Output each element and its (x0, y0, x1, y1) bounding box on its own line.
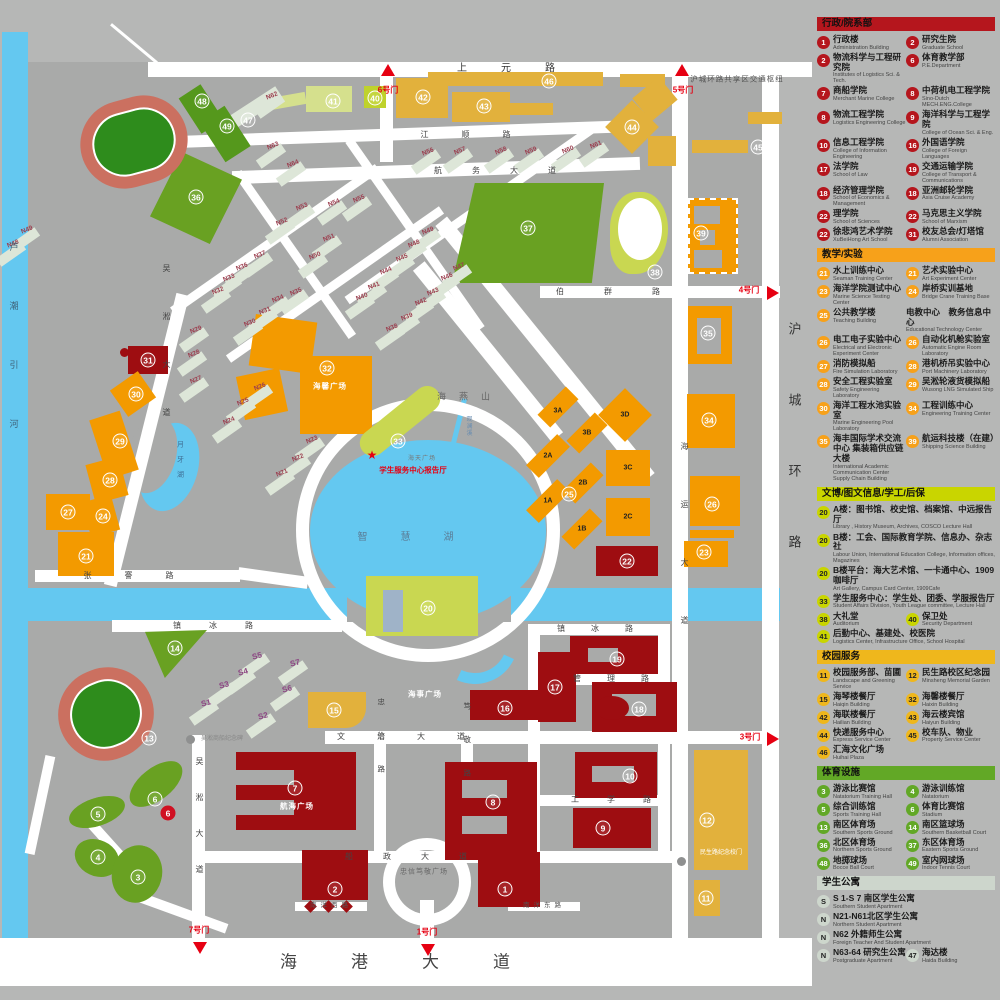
map-label: 2A (544, 453, 553, 460)
legend-row: 23海洋学院测试中心Marine Science Testing Center2… (817, 284, 995, 306)
map-number-7: 7 (288, 781, 303, 796)
map-number-2: 2 (328, 882, 343, 897)
legend-number-badge: 2 (817, 54, 830, 67)
legend-entry-text: 消防模拟船Fire Simulation Laboratory (833, 359, 898, 375)
legend-entry-text: 海云楼宾馆Haiyun Building (922, 710, 965, 726)
legend-number-badge: 14 (906, 821, 919, 834)
detail-shape (618, 198, 662, 260)
legend-row: 27消防模拟船Fire Simulation Laboratory28港机桥吊实… (817, 359, 995, 375)
map-label: 海天广场 (408, 456, 436, 462)
legend-entry-zh: 海馨楼餐厅 (922, 692, 965, 702)
legend-entry: 44快递服务中心Express Service Center (817, 728, 906, 744)
map-number-28: 28 (103, 473, 118, 488)
legend-number-badge: 4 (906, 785, 919, 798)
legend-entry-en: Marine Science Testing Center (833, 294, 906, 306)
detail-shape (126, 352, 140, 355)
legend-entry: 13南区体育场Southern Sports Ground (817, 820, 906, 836)
legend-entry-en: Automatic Engine Room Laboratory (922, 345, 995, 357)
legend-entry: 37东区体育场Eastern Sports Ground (906, 838, 995, 854)
legend-entry-en: Southern Sports Ground (833, 830, 893, 836)
legend-entry: 47海达楼Haida Building (906, 948, 995, 964)
map-label: 镇冰路 (173, 622, 281, 630)
legend-entry-text: 安全工程实验室Safety Engineering Laboratory (833, 377, 906, 399)
legend-entry: 35海丰国际学术交流中心 集装箱供应链大楼International Acade… (817, 434, 906, 481)
map-number-17: 17 (548, 680, 563, 695)
legend-row: 20B楼：工会、国际教育学院、信息办、杂志社Labour Union, Inte… (817, 533, 995, 565)
legend-number-badge: 46 (817, 746, 830, 759)
legend-entry-zh: 经济管理学院 (833, 186, 906, 196)
legend-entry-text: 外国语学院College of Foreign Languages (922, 138, 995, 160)
legend-entry-zh: S 1-S 7 南区学生公寓 (833, 894, 915, 904)
legend-number-badge: 40 (906, 613, 919, 626)
legend-entry: 49室内网球场Indoor Tennis Court (906, 856, 995, 872)
legend-entry-en: Electrical and Electronic Experiment Cen… (833, 345, 906, 357)
legend-number-badge: 22 (817, 210, 830, 223)
legend-number-badge: 29 (906, 378, 919, 391)
legend-entry-text: 自动化机舱实验室Automatic Engine Room Laboratory (922, 335, 995, 357)
legend-entry: 20A楼：图书馆、校史馆、档案馆、中远报告厅Library , History … (817, 505, 995, 531)
legend-row: NN62 外籍师生公寓Foreign Teacher And Student A… (817, 930, 995, 946)
legend-number-badge: 33 (817, 595, 830, 608)
legend-entry: 28港机桥吊实验中心Port Machinery Laboratory (906, 359, 995, 375)
legend-row: 10信息工程学院College of Information Engineeri… (817, 138, 995, 160)
legend-number-badge: 17 (817, 163, 830, 176)
legend-number-badge: 28 (817, 378, 830, 391)
legend-entry: 电教中心 教务信息中心Educational Technology Center (906, 308, 995, 334)
building (692, 140, 748, 153)
legend-row: 13南区体育场Southern Sports Ground14南区篮球场Sout… (817, 820, 995, 836)
legend-entry-en: Natatorium (922, 794, 965, 800)
legend-entry-en: Safety Engineering Laboratory (833, 387, 906, 399)
legend-entry-en: Art Gallery, Campus Card Center, 1909Caf… (833, 586, 995, 592)
building (300, 356, 372, 434)
legend-entry-zh: N62 外籍师生公寓 (833, 930, 931, 940)
legend-entry: NN62 外籍师生公寓Foreign Teacher And Student A… (817, 930, 995, 946)
legend-entry-zh: 水上训练中心 (833, 266, 893, 276)
gate-label: 4号门 (739, 285, 759, 296)
legend-entry: 21艺术实验中心Art Experiment Center (906, 266, 995, 282)
gate-label: 5号门 (673, 85, 693, 96)
legend-entry: 36北区体育场Northern Sports Ground (817, 838, 906, 854)
map-label: 海港大道 (280, 954, 564, 971)
legend-entry-en: Port Machinery Laboratory (922, 369, 990, 375)
legend-row: 3游泳比赛馆Natatorium Training Hall4游泳训练馆Nata… (817, 784, 995, 800)
legend-row: 11校园服务部、苗圃Landscape and Greening Service… (817, 668, 995, 690)
legend-entry-zh: 公共教学楼 (833, 308, 876, 318)
legend-entry: 26自动化机舱实验室Automatic Engine Room Laborato… (906, 335, 995, 357)
map-number-29: 29 (113, 434, 128, 449)
legend-entry-en: Merchant Marine College (833, 96, 894, 102)
legend-entry-text: 室内网球场Indoor Tennis Court (922, 856, 970, 872)
legend-entry-en: Sino-Dutch MECH.ENG.College (922, 96, 995, 108)
legend-entry-text: 亚洲邮轮学院Asia Cruise Academy (922, 186, 974, 202)
legend-number-badge: 15 (817, 693, 830, 706)
legend-row: 44快递服务中心Express Service Center45校车队、物业Pr… (817, 728, 995, 744)
map-number-49: 49 (220, 119, 235, 134)
legend-entry: 29吴淞轮液货模拟船Wusong LNG Simulated Ship (906, 377, 995, 399)
legend-entry-en: Southern Basketball Court (922, 830, 986, 836)
legend-row: NN63-64 研究生公寓Postgraduate Apartment47海达楼… (817, 948, 995, 964)
map-number-42: 42 (416, 90, 431, 105)
map-number-15: 15 (327, 703, 342, 718)
legend-entry-text: 信息工程学院College of Information Engineering (833, 138, 906, 160)
legend-number-badge: 23 (817, 285, 830, 298)
legend-number-badge: 10 (817, 139, 830, 152)
gate-label: 3号门 (740, 732, 760, 743)
legend-entry-zh: 海云楼宾馆 (922, 710, 965, 720)
legend-entry-zh: 体育比赛馆 (922, 802, 965, 812)
legend-entry-en: Haiyun Building (922, 720, 965, 726)
legend-entry-en: Northern Student Apartment (833, 922, 918, 928)
legend-entry-en: School of Marxism (922, 219, 982, 225)
legend-number-badge: 43 (906, 711, 919, 724)
legend-entry: 20B楼：工会、国际教育学院、信息办、杂志社Labour Union, Inte… (817, 533, 995, 565)
legend-number-badge: 47 (906, 949, 919, 962)
legend-entry-text: B楼：工会、国际教育学院、信息办、杂志社Labour Union, Intern… (833, 533, 995, 565)
legend-entry-zh: 大礼堂 (833, 612, 859, 622)
legend-entry-text: 海琴楼餐厅Haiqin Building (833, 692, 876, 708)
legend-entry: 31校友总会/灯塔馆Alumni Association (906, 227, 995, 243)
legend-number-badge: 27 (817, 360, 830, 373)
map-number-32: 32 (320, 361, 335, 376)
gate-label: 1号门 (417, 927, 437, 938)
road (110, 23, 158, 64)
legend-entry-en: School of Sciences (833, 219, 880, 225)
legend-entry-en: College of Transport & Communications (922, 172, 995, 184)
road (762, 70, 779, 945)
legend-number-badge: 26 (817, 336, 830, 349)
legend-entry-text: 交通运输学院College of Transport & Communicati… (922, 162, 995, 184)
legend-entry-en: School of Law (833, 172, 868, 178)
map-label: 管理路 (573, 675, 675, 683)
map-label: 忠信笃敬广场 (400, 869, 448, 876)
map-label: 沪城环路 (788, 322, 801, 606)
legend-entry-en: Educational Technology Center (906, 327, 995, 333)
legend-entry-text: 中荷机电工程学院Sino-Dutch MECH.ENG.College (922, 86, 995, 108)
legend-number-badge: 28 (906, 360, 919, 373)
legend-entry-text: 海洋工程水池实验室Marine Engineering Pool Laborat… (833, 401, 906, 433)
legend-entry-en: Haiqin Building (833, 702, 876, 708)
legend-entry-en: Bocce Ball Court (833, 865, 874, 871)
legend-entry: 17法学院School of Law (817, 162, 906, 184)
map-label: 沪城环路共享区交通枢纽 (690, 75, 784, 83)
map-number-48: 48 (195, 94, 210, 109)
legend-entry-en: Teaching Building (833, 318, 876, 324)
legend-entry: 2研究生院Graduate School (906, 35, 995, 51)
legend-entry-en: Asia Cruise Academy (922, 195, 974, 201)
legend-entry-zh: 亚洲邮轮学院 (922, 186, 974, 196)
legend-number-badge: 37 (906, 839, 919, 852)
legend-entry: 22理学院School of Sciences (817, 209, 906, 225)
legend-entry-zh: 校友总会/灯塔馆 (922, 227, 984, 237)
map-label: 海运大道 (680, 442, 688, 674)
legend-entry: 10信息工程学院College of Information Engineeri… (817, 138, 906, 160)
legend-entry-zh: 后勤中心、基建处、校医院 (833, 629, 965, 639)
legend-entry-en: Logistics Engineering College (833, 120, 905, 126)
legend-entry-en: Express Service Center (833, 737, 891, 743)
legend-entry: 39航运科技楼（在建）Shipping Science Building (906, 434, 995, 481)
legend-entry-text: 岸桥实训基地Bridge Crane Training Base (922, 284, 990, 300)
legend-entry-text: 游泳训练馆Natatorium (922, 784, 965, 800)
campus-map-page: N21N22N23N24N25N26N27N28N29N30N31N32N33N… (0, 0, 1000, 1000)
legend-entry-en: Eastern Sports Ground (922, 847, 978, 853)
legend-entry: 6体育比赛馆Stadium (906, 802, 995, 818)
map-number-44: 44 (625, 120, 640, 135)
legend-entry-en: Student Affairs Division, Youth League c… (833, 603, 995, 609)
map-label: 工学路 (571, 796, 679, 804)
legend-entry-en: Landscape and Greening Service (833, 678, 906, 690)
legend-entry-text: 水上训练中心Seaman Training Center (833, 266, 893, 282)
detail-shape (236, 770, 294, 785)
map-number-21: 21 (79, 549, 94, 564)
legend-entry-zh: 消防模拟船 (833, 359, 898, 369)
legend-entry-zh: 徐悲鸿艺术学院 (833, 227, 893, 237)
detail-shape (186, 735, 195, 744)
map-label: 3C (624, 465, 633, 472)
legend-entry-text: 电工电子实验中心Electrical and Electronic Experi… (833, 335, 906, 357)
legend-entry-zh: 海丰国际学术交流中心 集装箱供应链大楼 (833, 434, 906, 463)
legend-entry: 6体育教学部P.E.Department (906, 53, 995, 85)
legend-entry-zh: 南区体育场 (833, 820, 893, 830)
legend-number-badge: 20 (817, 506, 830, 519)
legend-entry-zh: 北区体育场 (833, 838, 892, 848)
legend-section-header: 教学/实验 (817, 248, 995, 262)
map-label: 海燕山 (437, 393, 503, 402)
map-label: 3A (554, 408, 563, 415)
legend-number-badge: 22 (817, 228, 830, 241)
legend-entry-zh: 工程训练中心 (922, 401, 991, 411)
legend-entry-text: 游泳比赛馆Natatorium Training Hall (833, 784, 892, 800)
legend-entry-text: S 1-S 7 南区学生公寓Southern Student Apartment (833, 894, 915, 910)
legend-section-header: 文博/图文信息/学工/后保 (817, 487, 995, 501)
legend-number-badge: 19 (906, 163, 919, 176)
map-number-6: 6 (148, 792, 163, 807)
legend-row: 7商船学院Merchant Marine College8中荷机电工程学院Sin… (817, 86, 995, 108)
legend-number-badge: 18 (906, 187, 919, 200)
legend-entry-en: Auditorium (833, 621, 859, 627)
legend-number-badge: 11 (817, 669, 830, 682)
legend-number-badge: 5 (817, 803, 830, 816)
legend-section-header: 校园服务 (817, 650, 995, 664)
legend-entry-zh: 研究生院 (922, 35, 963, 45)
legend-entry-zh: 海联楼餐厅 (833, 710, 876, 720)
map-number-23: 23 (697, 545, 712, 560)
legend-number-badge: 7 (817, 87, 830, 100)
legend-row: 1行政楼Administration Building2研究生院Graduate… (817, 35, 995, 51)
legend-number-badge: 20 (817, 534, 830, 547)
legend-entry-en: Graduate School (922, 45, 963, 51)
legend-number-badge: 16 (906, 139, 919, 152)
legend-entry-zh: 汇海文化广场 (833, 745, 884, 755)
legend-number-badge: 8 (817, 111, 830, 124)
map-label: 南洋东路 (523, 903, 565, 910)
legend-entry-zh: 中荷机电工程学院 (922, 86, 995, 96)
detail-shape (383, 590, 403, 632)
legend-number-badge: 39 (906, 435, 919, 448)
legend-number-badge: 44 (817, 729, 830, 742)
legend-entry-en: Postgraduate Apartment (833, 958, 906, 964)
legend-row: 36北区体育场Northern Sports Ground37东区体育场East… (817, 838, 995, 854)
map-number-31: 31 (141, 353, 156, 368)
legend-number-badge: 25 (817, 309, 830, 322)
legend-entry-zh: 校车队、物业 (922, 728, 981, 738)
legend-entry: 21水上训练中心Seaman Training Center (817, 266, 906, 282)
legend-row: 35海丰国际学术交流中心 集装箱供应链大楼International Acade… (817, 434, 995, 481)
legend-entry: 3游泳比赛馆Natatorium Training Hall (817, 784, 906, 800)
legend-entry-zh: 南区篮球场 (922, 820, 986, 830)
legend-entry-text: 海洋科学与工程学院College of Ocean Sci. & Eng. (922, 110, 995, 136)
legend-entry-en: College of Information Engineering (833, 148, 906, 160)
legend-entry-zh: 游泳训练馆 (922, 784, 965, 794)
map-label: 吴淞商船纪念碑 (201, 736, 243, 742)
legend-entry-text: N21-N61北区学生公寓Northern Student Apartment (833, 912, 918, 928)
legend-entry-en: College of Foreign Languages (922, 148, 995, 160)
map-number-3: 3 (131, 870, 146, 885)
legend-entry-zh: 外国语学院 (922, 138, 995, 148)
legend-entry-zh: 安全工程实验室 (833, 377, 906, 387)
legend-number-badge: 8 (906, 87, 919, 100)
map-label: 海馨广场 (313, 382, 347, 390)
legend-entry-zh: N21-N61北区学生公寓 (833, 912, 918, 922)
legend-number-badge: 45 (906, 729, 919, 742)
map-label: 学生服务中心报告厅 (379, 466, 447, 474)
legend-entry-zh: 艺术实验中心 (922, 266, 976, 276)
building (428, 72, 603, 86)
legend-number-badge: 20 (817, 567, 830, 580)
map-number-19: 19 (610, 652, 625, 667)
map-label: 1B (578, 526, 587, 533)
legend-entry: 48地掷球场Bocce Ball Court (817, 856, 906, 872)
legend-number-badge: 38 (817, 613, 830, 626)
map-number-47: 47 (241, 113, 256, 128)
legend-entry-text: 校园服务部、苗圃Landscape and Greening Service (833, 668, 906, 690)
legend-entry: 18亚洲邮轮学院Asia Cruise Academy (906, 186, 995, 208)
map-label: 船政大道 (345, 853, 497, 861)
legend-entry-text: 民生路校区纪念园Minsheng Memorial Garden (922, 668, 990, 684)
legend-entry-text: 电教中心 教务信息中心Educational Technology Center (906, 308, 995, 334)
legend-entry-text: 研究生院Graduate School (922, 35, 963, 51)
legend-entry: 12民生路校区纪念园Minsheng Memorial Garden (906, 668, 995, 690)
legend-entry: 22徐悲鸿艺术学院XuBeiHong Art School (817, 227, 906, 243)
legend-entry-en: School of Economics & Management (833, 195, 906, 207)
legend-number-badge: 35 (817, 435, 830, 448)
map-label: 吴淞大道 (162, 264, 170, 456)
legend-entry: 7商船学院Merchant Marine College (817, 86, 906, 108)
detail-shape (595, 696, 629, 720)
legend-entry-zh: 物流科学与工程研究院 (833, 53, 906, 73)
legend-entry-en: Seaman Training Center (833, 276, 893, 282)
map-number-33: 33 (391, 434, 406, 449)
legend-entry-zh: 法学院 (833, 162, 868, 172)
legend-entry-zh: 海达楼 (922, 948, 957, 958)
legend-entry-zh: 电工电子实验中心 (833, 335, 906, 345)
legend-entry-en: Library , History Museum, Archives, COSC… (833, 524, 995, 530)
legend-entry-text: 南区篮球场Southern Basketball Court (922, 820, 986, 836)
legend-number-badge: S (817, 895, 830, 908)
gate-arrow-icon (381, 64, 395, 76)
legend-entry-zh: 港机桥吊实验中心 (922, 359, 990, 369)
map-number-14: 14 (168, 641, 183, 656)
legend-row: 48地掷球场Bocce Ball Court49室内网球场Indoor Tenn… (817, 856, 995, 872)
map-label: 芦潮引河 (9, 242, 18, 478)
map-label: 航务大道 (434, 167, 586, 175)
legend-entry-en: Indoor Tennis Court (922, 865, 970, 871)
detail-shape (677, 857, 686, 866)
map-number-13: 13 (142, 731, 157, 746)
legend-entry: 43海云楼宾馆Haiyun Building (906, 710, 995, 726)
legend-section-header: 行政/院系部 (817, 17, 995, 31)
legend-entry-text: 地掷球场Bocce Ball Court (833, 856, 874, 872)
legend-entry: 24岸桥实训基地Bridge Crane Training Base (906, 284, 995, 306)
map-number-43: 43 (477, 99, 492, 114)
road (658, 624, 670, 854)
legend-entry-zh: 自动化机舱实验室 (922, 335, 995, 345)
legend-number-badge: 32 (906, 693, 919, 706)
legend-number-badge: 18 (817, 187, 830, 200)
legend-entry: 30海洋工程水池实验室Marine Engineering Pool Labor… (817, 401, 906, 433)
legend-number-badge: 31 (906, 228, 919, 241)
legend-entry-text: B楼平台：海大艺术馆、一卡通中心、1909咖啡厅Art Gallery, Cam… (833, 566, 995, 592)
gate-arrow-icon (767, 732, 779, 746)
legend-entry-en: International Academic Communication Cen… (833, 464, 906, 482)
map-number-16: 16 (498, 701, 513, 716)
legend-entry-text: 大礼堂Auditorium (833, 612, 859, 628)
legend-row: 8物流工程学院Logistics Engineering College9海洋科… (817, 110, 995, 136)
legend-entry: 18经济管理学院School of Economics & Management (817, 186, 906, 208)
legend-number-badge: 48 (817, 857, 830, 870)
legend-entry-zh: 行政楼 (833, 35, 889, 45)
map-label: 笃敬路 (463, 702, 471, 803)
legend-entry-text: 南区体育场Southern Sports Ground (833, 820, 893, 836)
map-label: 航海广场 (280, 802, 314, 810)
legend-number-badge: 13 (817, 821, 830, 834)
legend-entry-text: 学生服务中心：学生处、团委、学服报告厅Student Affairs Divis… (833, 594, 995, 610)
legend-entry-en: Engineering Training Center (922, 411, 991, 417)
legend-entry-text: 海馨楼餐厅Haixin Building (922, 692, 965, 708)
legend-number-badge: 26 (906, 336, 919, 349)
legend-entry-zh: 地掷球场 (833, 856, 874, 866)
map-label: 江顺路 (421, 131, 544, 139)
gate-arrow-icon (421, 944, 435, 956)
map-number-35: 35 (701, 326, 716, 341)
legend-entry-en: Stadium (922, 812, 965, 818)
map-label: 观澜溪 (465, 416, 471, 437)
legend-number-badge: 49 (906, 857, 919, 870)
legend-entry: 20B楼平台：海大艺术馆、一卡通中心、1909咖啡厅Art Gallery, C… (817, 566, 995, 592)
building (573, 808, 651, 848)
legend-entry-en: Security Department (922, 621, 972, 627)
legend-entry-zh: B楼平台：海大艺术馆、一卡通中心、1909咖啡厅 (833, 566, 995, 586)
legend-entry-en: P.E.Department (922, 63, 965, 69)
legend-entry: 5综合训练馆Sports Training Hall (817, 802, 906, 818)
legend-entry: 1行政楼Administration Building (817, 35, 906, 51)
map-number-10: 10 (623, 769, 638, 784)
map-number-20: 20 (421, 601, 436, 616)
legend-entry: 32海馨楼餐厅Haixin Building (906, 692, 995, 708)
map-number-1: 1 (498, 882, 513, 897)
legend-entry-zh: 航运科技楼（在建） (922, 434, 995, 444)
map-number-18: 18 (632, 702, 647, 717)
legend-entry-zh: 海洋学院测试中心 (833, 284, 906, 294)
legend-number-badge: 21 (817, 267, 830, 280)
legend-entry: 41后勤中心、基建处、校医院Logistics Center, Infrastr… (817, 629, 995, 645)
legend-row: 21水上训练中心Seaman Training Center21艺术实验中心Ar… (817, 266, 995, 282)
legend-entry: 25公共教学楼Teaching Building (817, 308, 906, 334)
legend-entry-text: 徐悲鸿艺术学院XuBeiHong Art School (833, 227, 893, 243)
legend-number-badge: 12 (906, 669, 919, 682)
legend-row: 15海琴楼餐厅Haiqin Building32海馨楼餐厅Haixin Buil… (817, 692, 995, 708)
legend-row: 42海联楼餐厅Hailian Building43海云楼宾馆Haiyun Bui… (817, 710, 995, 726)
